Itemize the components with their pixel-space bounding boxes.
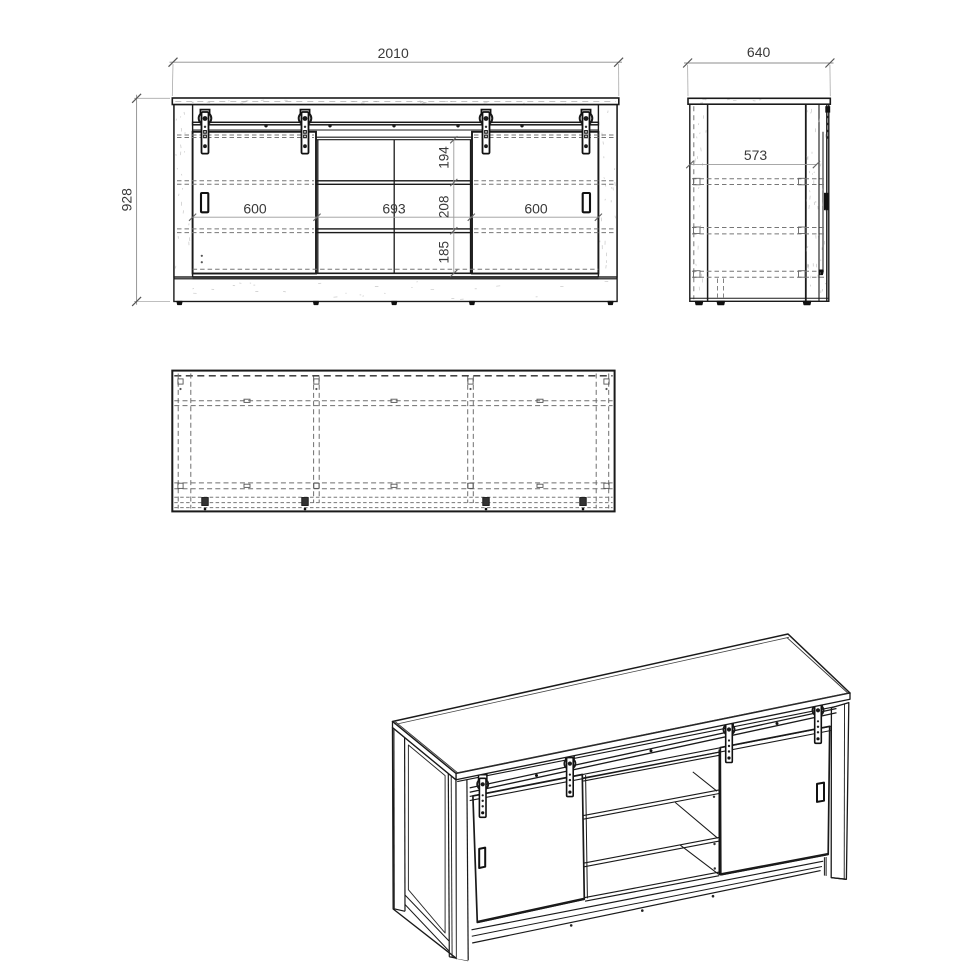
svg-text:600: 600 xyxy=(243,200,267,216)
svg-text:640: 640 xyxy=(747,44,771,60)
svg-text:2010: 2010 xyxy=(378,45,409,61)
svg-text:208: 208 xyxy=(436,196,451,219)
svg-text:185: 185 xyxy=(436,241,451,264)
svg-text:194: 194 xyxy=(436,146,451,169)
svg-text:600: 600 xyxy=(524,200,548,216)
svg-text:928: 928 xyxy=(119,188,135,212)
svg-text:573: 573 xyxy=(744,147,768,163)
svg-text:693: 693 xyxy=(382,200,406,216)
